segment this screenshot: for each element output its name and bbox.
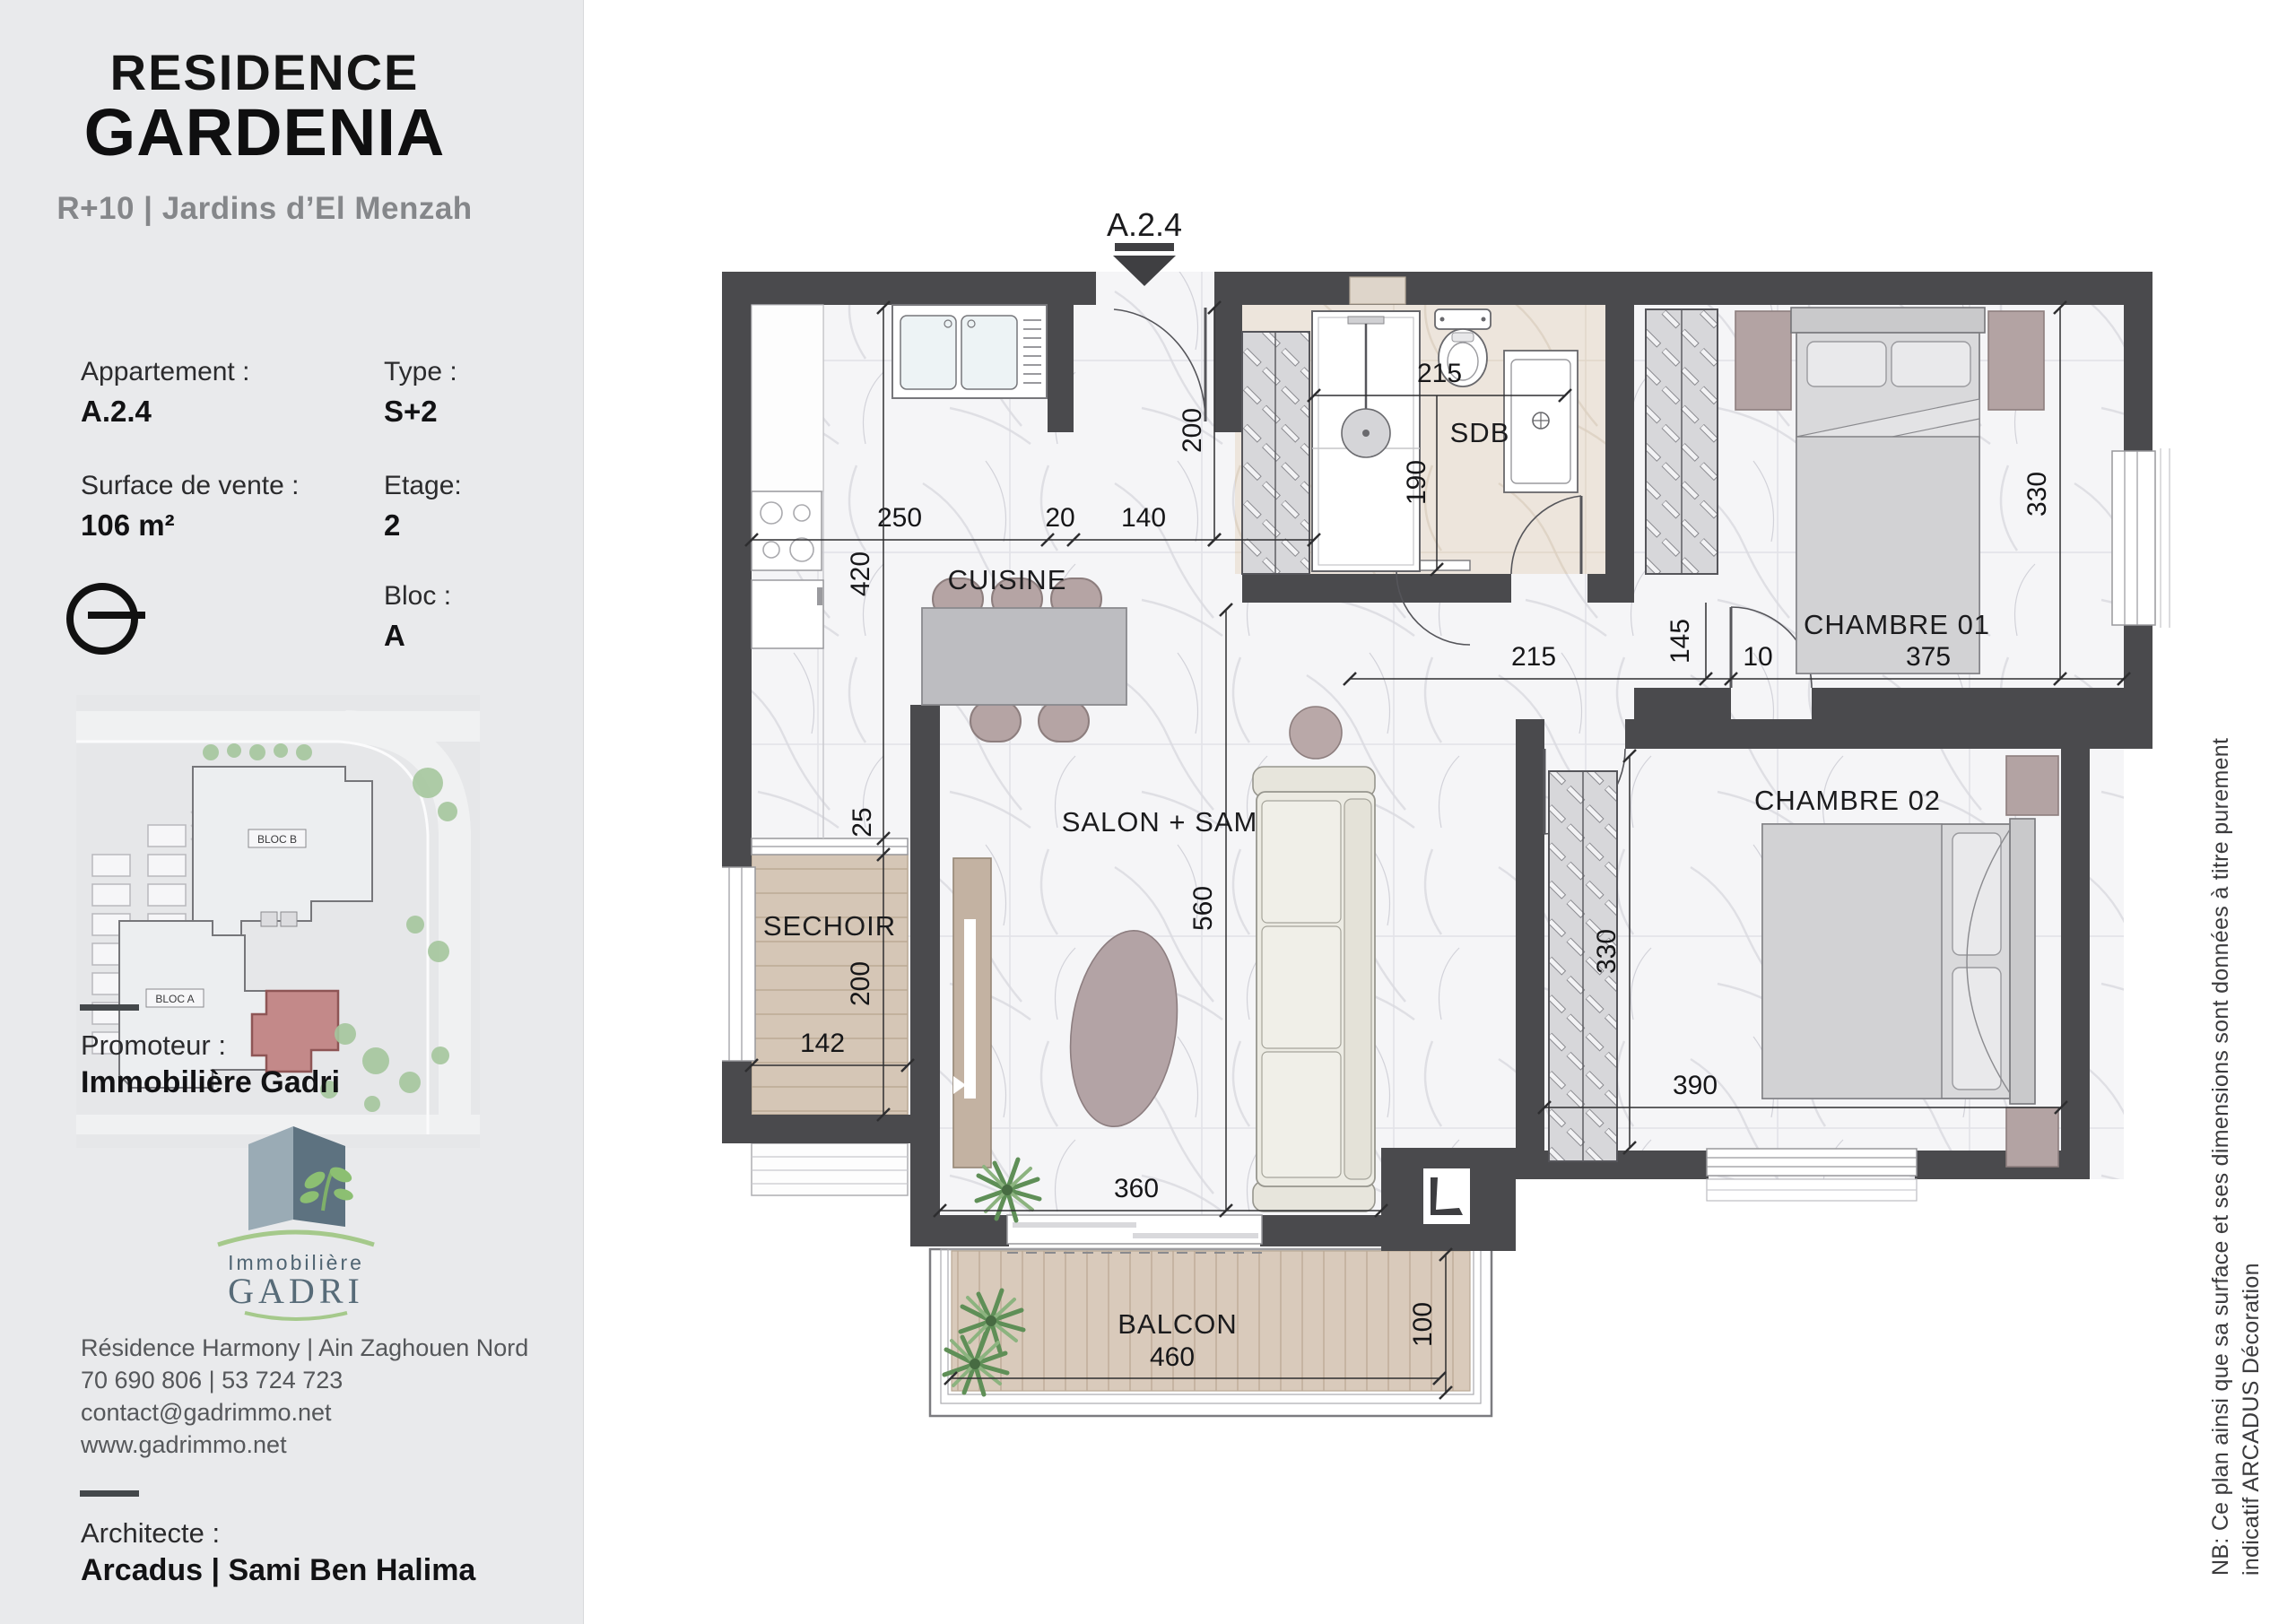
nightstand xyxy=(2006,756,2058,815)
appartement-value: A.2.4 xyxy=(81,395,249,429)
type-value: S+2 xyxy=(384,395,457,429)
bathroom-sink xyxy=(1504,351,1578,492)
promoteur-value: Immobilière Gadri xyxy=(81,1065,340,1100)
nightstand xyxy=(1988,311,2044,410)
label-balcon: BALCON xyxy=(1118,1308,1237,1340)
etage-label: Etage: xyxy=(384,471,462,501)
window-chambre1 xyxy=(2112,448,2170,628)
field-etage: Etage: 2 xyxy=(384,471,462,543)
divider-promoteur xyxy=(80,1004,139,1011)
field-bloc: Bloc : A xyxy=(384,581,451,653)
contact-line3: contact@gadrimmo.net xyxy=(81,1396,332,1429)
tv-console xyxy=(953,858,991,1168)
dim-cuisine-420: 420 xyxy=(846,551,875,596)
balcony-sliding-door xyxy=(1007,1215,1262,1253)
architecte-label: Architecte : xyxy=(81,1517,220,1550)
dim-corridor-10: 10 xyxy=(1743,642,1772,672)
dim-salon-360: 360 xyxy=(1114,1174,1159,1203)
dim-ch1-330: 330 xyxy=(2022,472,2052,517)
field-surface: Surface de vente : 106 m² xyxy=(81,471,300,543)
dim-ch2-390: 390 xyxy=(1673,1071,1718,1100)
dining-table xyxy=(922,608,1126,705)
label-chambre1: CHAMBRE 01 xyxy=(1804,609,1990,640)
logo-line2: GADRI xyxy=(228,1271,364,1311)
surface-value: 106 m² xyxy=(81,508,300,543)
nightstand xyxy=(2006,1107,2058,1167)
project-subtitle: R+10 | Jardins d’El Menzah xyxy=(36,191,493,227)
disclaimer-line1: NB: Ce plan ainsi que sa surface et ses … xyxy=(2208,738,2234,1576)
chambre1-wardrobe xyxy=(1646,309,1718,574)
label-chambre2: CHAMBRE 02 xyxy=(1754,785,1941,816)
etage-value: 2 xyxy=(384,508,462,543)
bed-double xyxy=(1762,819,2035,1104)
dim-salon-560: 560 xyxy=(1188,886,1218,931)
site-bloc-b-label: BLOC B xyxy=(257,833,297,846)
dim-sdb-190: 190 xyxy=(1402,460,1431,505)
label-cuisine: CUISINE xyxy=(948,564,1067,595)
north-compass-icon xyxy=(52,565,160,673)
title-line1: RESIDENCE xyxy=(36,47,493,100)
sidebar: RESIDENCE GARDENIA R+10 | Jardins d’El M… xyxy=(0,0,584,1624)
dim-ch2-330: 330 xyxy=(1592,929,1622,974)
nightstand xyxy=(1735,311,1791,410)
divider-architecte xyxy=(80,1490,139,1497)
label-sechoir: SECHOIR xyxy=(763,910,896,942)
dim-corridor-145: 145 xyxy=(1665,619,1695,664)
unit-label: A.2.4 xyxy=(1107,206,1182,243)
dim-sechoir-25: 25 xyxy=(848,807,877,837)
contact-line2: 70 690 806 | 53 724 723 xyxy=(81,1364,343,1397)
window-sechoir-west xyxy=(722,867,755,1061)
title-line2: GARDENIA xyxy=(36,100,493,166)
dim-cuisine-20: 20 xyxy=(1045,503,1074,533)
entry-wardrobe xyxy=(1242,332,1309,574)
kitchen-sink xyxy=(892,305,1047,398)
sofa xyxy=(1253,767,1375,1211)
window-sechoir-strip xyxy=(752,838,908,855)
gadri-logo: Immobilière GADRI xyxy=(202,1110,390,1321)
appartement-label: Appartement : xyxy=(81,357,249,387)
field-type: Type : S+2 xyxy=(384,357,457,429)
type-label: Type : xyxy=(384,357,457,387)
shower xyxy=(1312,277,1420,571)
label-sdb: SDB xyxy=(1450,417,1510,448)
site-bloc-a-label: BLOC A xyxy=(155,993,194,1005)
bloc-value: A xyxy=(384,619,451,653)
shaft-symbol xyxy=(1423,1168,1470,1224)
side-table xyxy=(1290,707,1342,759)
exterior-ledge xyxy=(752,1143,908,1195)
floor-sechoir-deck xyxy=(752,855,908,1115)
dim-ch1-375: 375 xyxy=(1906,642,1951,672)
fridge xyxy=(752,580,823,648)
stove xyxy=(752,491,822,570)
label-salon: SALON + SAM xyxy=(1062,806,1258,838)
disclaimer-line2: indicatif ARCADUS Décoration xyxy=(2239,1263,2265,1576)
dim-entry-200: 200 xyxy=(1178,408,1207,453)
dim-balcon-100: 100 xyxy=(1408,1302,1438,1347)
floorplan-brochure: RESIDENCE GARDENIA R+10 | Jardins d’El M… xyxy=(0,0,2296,1624)
surface-label: Surface de vente : xyxy=(81,471,300,501)
dim-sdb-215: 215 xyxy=(1417,359,1462,388)
window-chambre2 xyxy=(1707,1149,1917,1201)
dim-balcon-460: 460 xyxy=(1150,1342,1195,1372)
promoteur-label: Promoteur : xyxy=(81,1029,226,1062)
floor-plan: A.2.4 250 20 140 200 420 25 200 xyxy=(722,193,2175,1448)
dim-corridor-215: 215 xyxy=(1511,642,1556,672)
architecte-value: Arcadus | Sami Ben Halima xyxy=(81,1553,475,1588)
dim-cuisine-140: 140 xyxy=(1121,503,1166,533)
contact-line1: Résidence Harmony | Ain Zaghouen Nord xyxy=(81,1332,528,1365)
project-title: RESIDENCE GARDENIA R+10 | Jardins d’El M… xyxy=(36,47,493,227)
dim-sechoir-200: 200 xyxy=(846,961,875,1006)
dim-sechoir-142: 142 xyxy=(800,1029,845,1058)
bloc-label: Bloc : xyxy=(384,581,451,612)
field-appartement: Appartement : A.2.4 xyxy=(81,357,249,429)
contact-line4: www.gadrimmo.net xyxy=(81,1429,287,1462)
logo-building-left xyxy=(248,1126,293,1230)
